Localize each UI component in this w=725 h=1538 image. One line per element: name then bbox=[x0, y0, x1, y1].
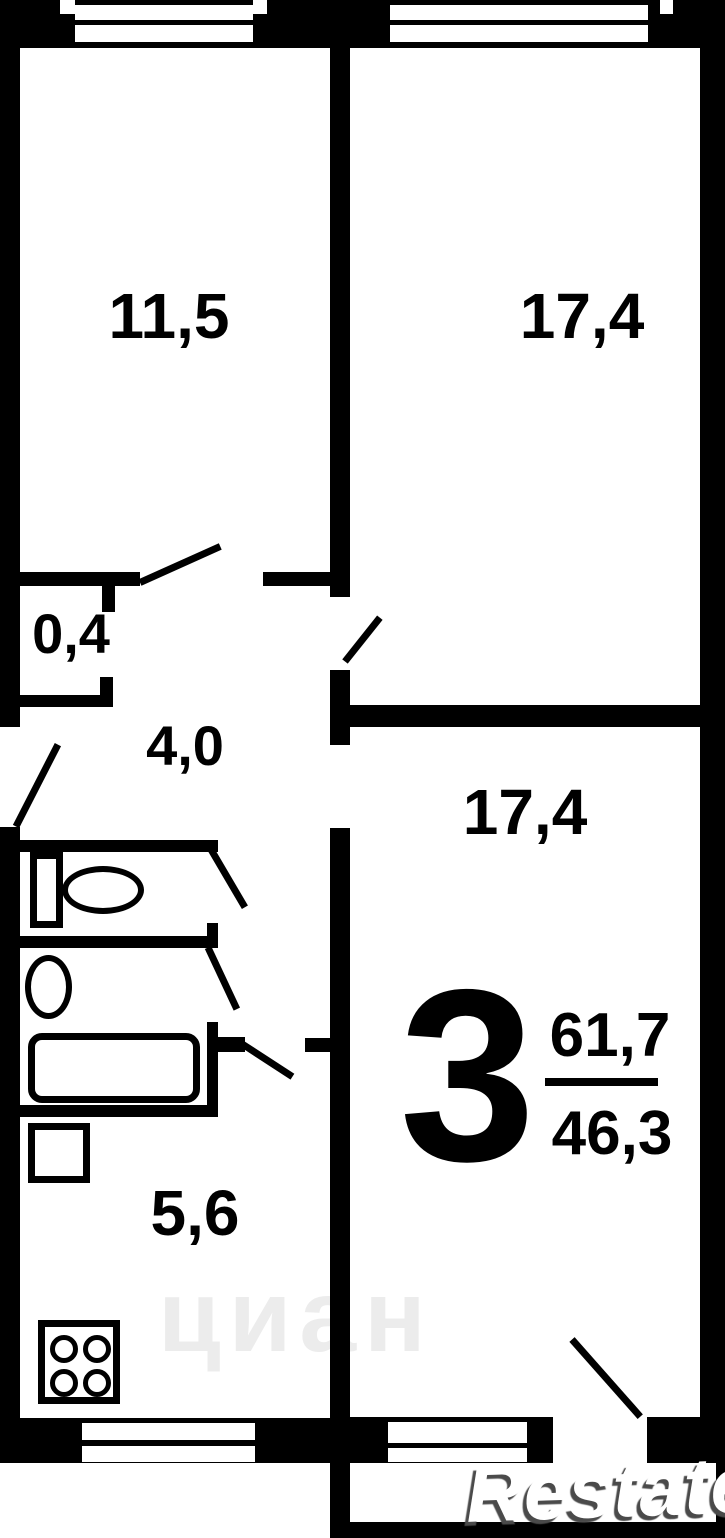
wall-right bbox=[700, 0, 725, 1538]
window-notch bbox=[660, 0, 673, 14]
room-area-label-top-left: 11,5 bbox=[69, 271, 269, 361]
window-kitchen bbox=[82, 1423, 255, 1462]
window-notch bbox=[253, 0, 267, 14]
wall-room1-bottom-right bbox=[263, 572, 350, 586]
door-swing-entrance bbox=[13, 743, 61, 828]
wall-kitchen-door-jamb-right bbox=[305, 1038, 330, 1052]
total-area-label: 61,7 bbox=[530, 1000, 690, 1070]
wall-room1-bottom-left bbox=[0, 572, 140, 586]
wall-between-right-rooms bbox=[350, 705, 725, 727]
door-swing-room2 bbox=[342, 615, 382, 663]
toilet-bowl bbox=[62, 866, 144, 914]
window-notch bbox=[60, 0, 75, 14]
stove-burner bbox=[50, 1335, 78, 1363]
wall-kitchen-door-jamb-left bbox=[218, 1037, 245, 1052]
wall-middle-top bbox=[330, 0, 350, 597]
watermark-cian: циан bbox=[158, 1258, 618, 1374]
room-area-label-kitchen: 5,6 bbox=[95, 1168, 295, 1258]
stove-icon bbox=[38, 1320, 120, 1404]
stove-burner bbox=[83, 1335, 111, 1363]
door-swing-bathroom bbox=[205, 946, 240, 1011]
wall-left-lower bbox=[0, 827, 20, 1463]
wall-wc-top bbox=[0, 840, 218, 852]
wall-middle-stub bbox=[330, 670, 350, 745]
door-swing-room1 bbox=[139, 543, 222, 585]
washing-machine-icon bbox=[28, 1123, 90, 1183]
door-swing-kitchen bbox=[241, 1042, 294, 1080]
rooms-count-label: 3 bbox=[395, 955, 540, 1195]
stove-burner bbox=[83, 1369, 111, 1397]
stove-burner bbox=[50, 1369, 78, 1397]
window-room1 bbox=[75, 5, 253, 42]
watermark-restate: Restate bbox=[464, 1439, 725, 1538]
window-pane-line bbox=[82, 1440, 255, 1446]
wall-wc-bath-divider-stub bbox=[207, 923, 218, 948]
floor-plan-canvas: циан bbox=[0, 0, 725, 1538]
area-fraction-divider bbox=[545, 1078, 658, 1086]
room-area-label-hallway: 4,0 bbox=[105, 705, 265, 785]
window-room2 bbox=[390, 5, 648, 42]
bathtub-icon bbox=[28, 1033, 200, 1103]
toilet-tank bbox=[30, 852, 63, 928]
room-area-label-top-right: 17,4 bbox=[482, 271, 682, 361]
wall-bath-right bbox=[207, 1022, 218, 1117]
window-pane-line bbox=[75, 20, 253, 25]
room-area-label-bottom-right: 17,4 bbox=[425, 767, 625, 857]
wall-wc-bath-divider bbox=[0, 936, 210, 948]
window-pane-line bbox=[390, 20, 648, 25]
living-area-label: 46,3 bbox=[532, 1098, 692, 1168]
wall-bath-bottom bbox=[0, 1105, 218, 1117]
sink-icon bbox=[25, 955, 72, 1019]
room-area-label-closet: 0,4 bbox=[11, 593, 131, 673]
door-swing-wc bbox=[208, 848, 248, 909]
wall-closet-bottom bbox=[0, 695, 110, 707]
